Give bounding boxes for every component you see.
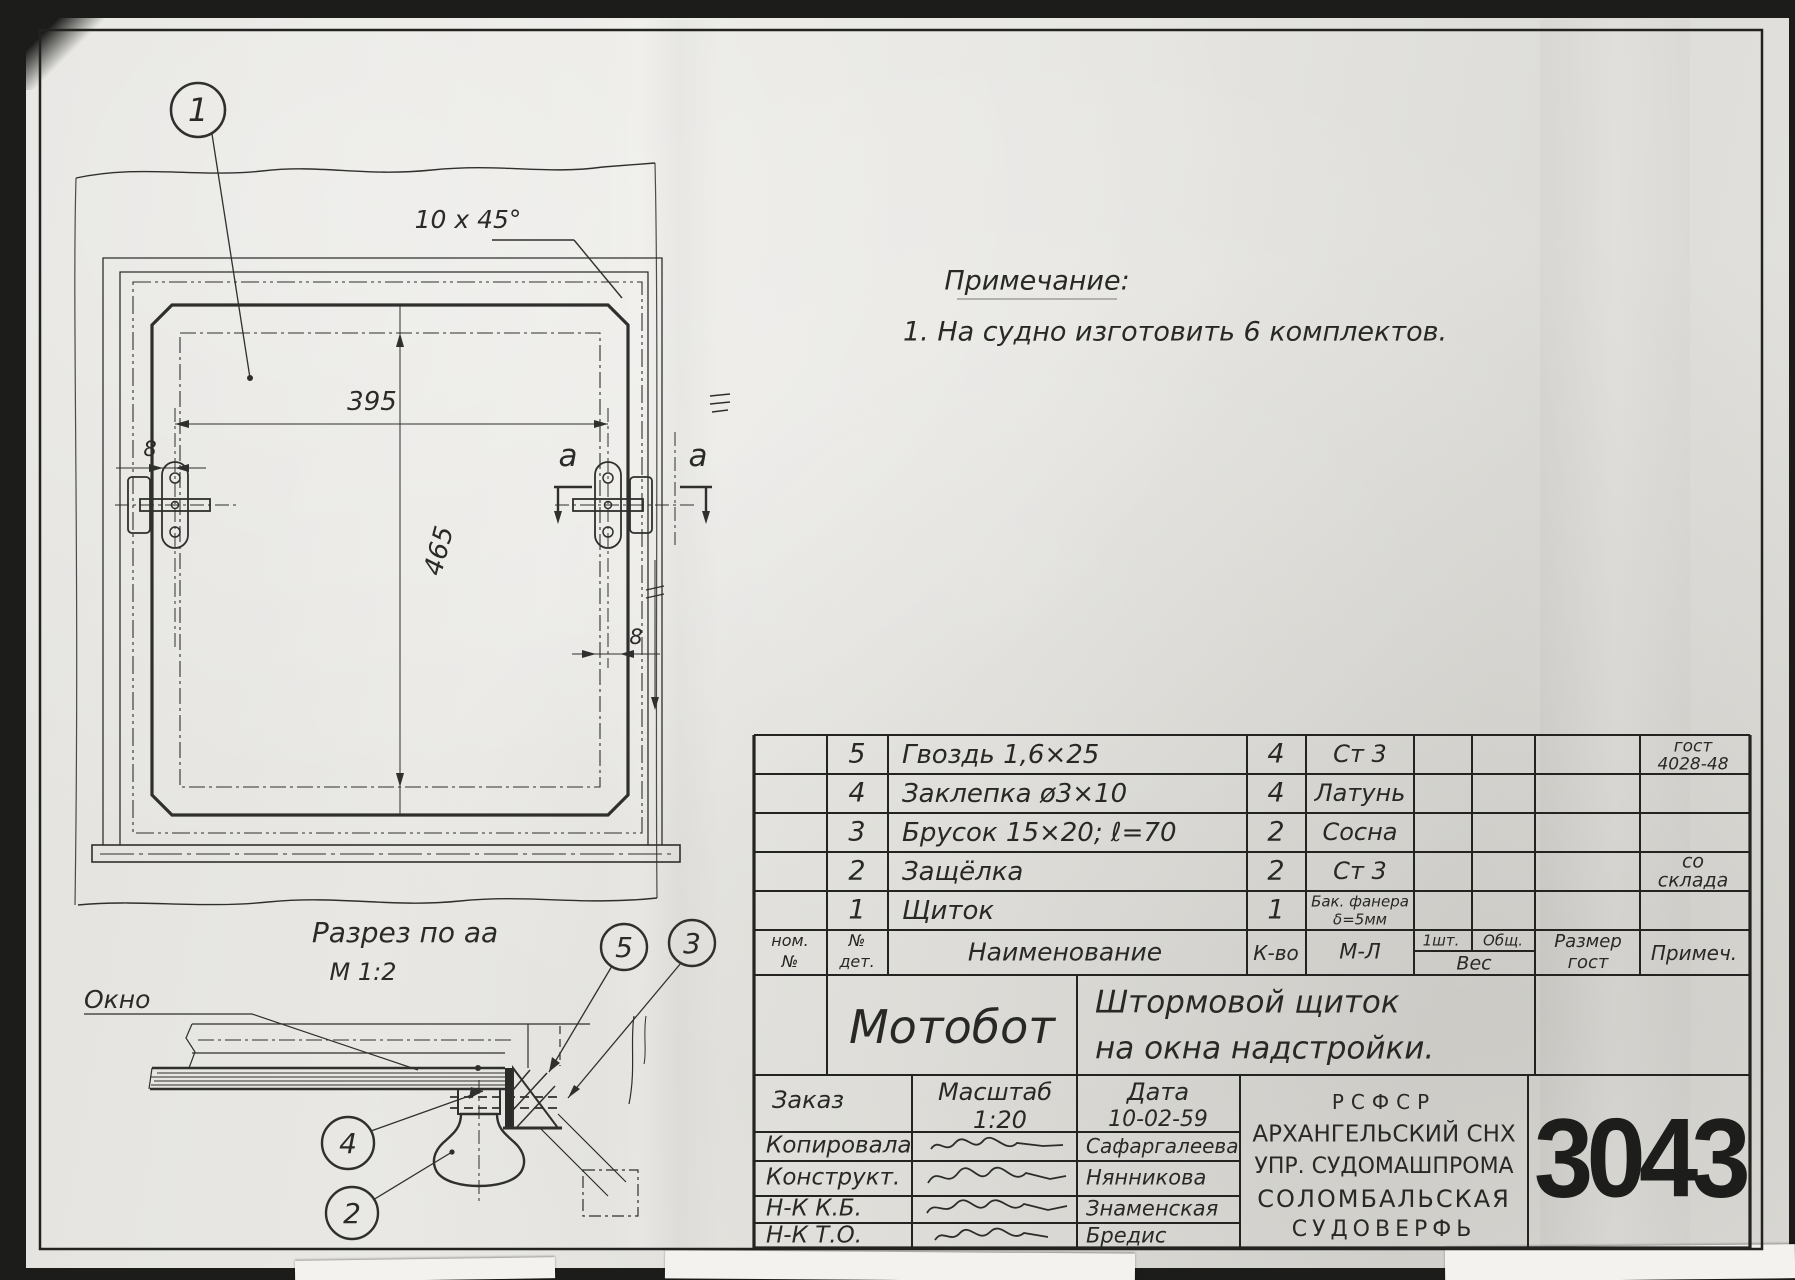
bom-name: Заклепка ø3×10 [902,781,1127,807]
bom-header-name: Наименование [968,940,1162,965]
org-line-5: СУДОВЕРФЬ [1292,1219,1477,1241]
bom-name: Защёлка [902,859,1023,885]
bom-det: 2 [848,858,865,885]
bom-header-total: Общ. [1483,934,1523,949]
dim-offset-left-label: 8 [143,437,156,461]
bom-header-qty: К-во [1253,943,1298,963]
signature-scribble [925,1133,1070,1159]
bom-header-size2: гост [1568,954,1609,972]
bom-header-note: Примеч. [1651,943,1737,963]
main-view [75,83,730,905]
bom-qty: 1 [1267,897,1284,924]
balloon-5-label: 5 [615,931,633,964]
window-label: Окно [84,985,150,1014]
scale-label: Масштаб [938,1080,1052,1104]
line-art: 395 465 8 8 10 х 45° а а 1 Разрез по аа … [0,0,1795,1280]
bom-header-nom2: № [782,954,799,970]
bom-header-det2: дет. [839,954,874,970]
bom-note: склада [1658,872,1729,891]
bom-header-weight: Вес [1456,955,1491,974]
bom-header-size: Размер [1554,933,1622,951]
note-title: Примечание: [944,268,1129,295]
sign-role: Н-К К.Б. [766,1198,862,1221]
chamfer-callout-label: 10 х 45° [415,205,522,234]
drawing-number: 3043 [1534,1103,1744,1215]
bom-qty: 2 [1267,819,1284,846]
drawing-title-line1: Штормовой щиток [1095,988,1400,1019]
org-line-1: РСФСР [1332,1092,1436,1112]
order-label: Заказ [772,1088,844,1112]
sign-name: Сафаргалеева [1086,1136,1238,1156]
section-title: Разрез по аа [312,916,498,949]
bom-note: 4028-48 [1657,757,1728,774]
latch-left [115,462,240,548]
bom-qty: 4 [1267,780,1284,807]
dim-height-label: 465 [418,523,460,579]
note-line-1: 1. На судно изготовить 6 комплектов. [903,319,1447,346]
sign-name: Нянникова [1086,1168,1206,1189]
bom-name: Гвоздь 1,6×25 [902,742,1099,768]
bom-mat: Ст 3 [1333,742,1387,766]
sign-name: Бредис [1086,1226,1166,1247]
bom-header-mat: М-Л [1339,942,1381,963]
balloon-1-label: 1 [188,91,208,129]
sign-role: Конструкт. [766,1167,900,1190]
bom-mat: Латунь [1315,781,1406,805]
bom-det: 4 [848,780,865,807]
date-label: Дата [1127,1080,1189,1104]
drawing-title-line2: на окна надстройки. [1095,1034,1434,1065]
bom-header-nom: ном. [771,933,808,949]
shield-section-layers [149,1068,505,1089]
bom-det: 3 [848,819,865,846]
dimension-arrows [149,333,710,1099]
section-scale: М 1:2 [330,958,397,986]
balloon-2-label: 2 [343,1197,361,1230]
bom-mat: Сосна [1322,820,1397,844]
section-letter-right: а [689,438,708,474]
signature-scribble [930,1224,1060,1248]
section-cut-markers [554,487,712,518]
bracket-section [503,1068,562,1128]
bom-mat: Ст 3 [1333,859,1387,883]
bom-mat-2: δ=5мм [1333,913,1387,928]
bom-note: гост [1674,739,1713,756]
balloon-4-label: 4 [339,1127,357,1160]
dim-offset-right-label: 8 [629,625,642,649]
org-line-3: УПР. СУДОМАШПРОМА [1254,1156,1513,1178]
org-line-2: АРХАНГЕЛЬСКИЙ СНХ [1252,1124,1515,1147]
section-letter-left: а [559,438,578,474]
bom-det: 5 [848,741,865,768]
section-view [84,920,715,1239]
bom-det: 1 [848,897,865,924]
signature-scribble [922,1163,1072,1193]
bom-name: Щиток [902,898,994,924]
sign-role: Н-К Т.О. [766,1225,862,1248]
date-value: 10-02-59 [1108,1109,1208,1131]
scanned-blueprint: 395 465 8 8 10 х 45° а а 1 Разрез по аа … [0,0,1795,1280]
dim-width-label: 395 [347,387,397,417]
latch-right [555,462,695,548]
bom-name: Брусок 15×20; ℓ=70 [902,820,1177,846]
scale-value: 1:20 [973,1108,1027,1132]
signature-scribble [922,1195,1072,1221]
bom-qty: 4 [1267,741,1284,768]
latch-section [434,1065,558,1205]
bom-header-det: № [849,933,866,949]
bom-header-one: 1шт. [1423,934,1460,949]
sign-name: Знаменская [1086,1199,1218,1220]
sign-role: Копировала [766,1135,912,1158]
bom-qty: 2 [1267,858,1284,885]
bom-mat: Бак. фанера [1311,895,1409,910]
sheet-frame [40,30,1762,1249]
org-line-4: СОЛОМБАЛЬСКАЯ [1257,1187,1511,1211]
object-name: Мотобот [849,1004,1055,1050]
balloon-3-label: 3 [683,927,701,960]
